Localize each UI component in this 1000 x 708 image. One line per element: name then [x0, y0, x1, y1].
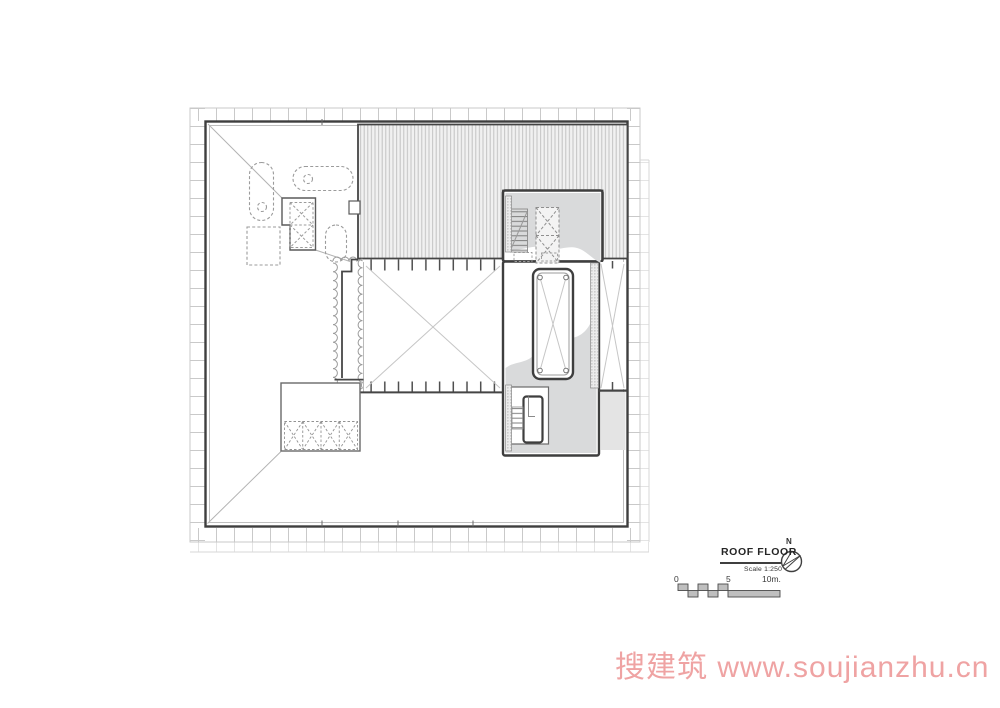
- elevator-shaft: [536, 208, 559, 264]
- title-underline: [720, 562, 781, 564]
- stair-lower: [512, 407, 523, 429]
- scale-tick-0: 0: [674, 574, 679, 584]
- roof-notch: [349, 201, 360, 214]
- scale-bar: [678, 584, 780, 597]
- gutter-ticks-bottom: [362, 382, 502, 393]
- drawing-title: ROOF FLOOR: [721, 546, 797, 558]
- canvas: ROOF FLOOR Scale 1:250 N 0 5 10m. 搜建筑 ww…: [0, 0, 1000, 708]
- coping-band-bottom: [190, 528, 640, 542]
- scale-label: Scale 1:250: [744, 566, 782, 573]
- coping-band-right: [627, 108, 640, 542]
- coping-band-top: [190, 108, 640, 121]
- north-label: N: [786, 537, 792, 546]
- roof-plan-drawing: [0, 0, 1000, 708]
- scale-tick-10: 10m.: [762, 574, 781, 584]
- scale-tick-5: 5: [726, 574, 731, 584]
- east-parapet-gray: [601, 392, 626, 450]
- gutter-ticks-top: [362, 260, 502, 271]
- skylight: [533, 269, 573, 379]
- southwest-block: [281, 383, 360, 451]
- east-panel: [598, 261, 628, 450]
- core: [503, 191, 603, 456]
- coping-band-right-outer: [640, 160, 649, 542]
- watermark: 搜建筑 www.soujianzhu.cn: [615, 642, 989, 686]
- penthouse-room: [511, 387, 549, 444]
- coping-band-bottom-outer: [190, 542, 649, 552]
- coping-band-left: [190, 108, 205, 542]
